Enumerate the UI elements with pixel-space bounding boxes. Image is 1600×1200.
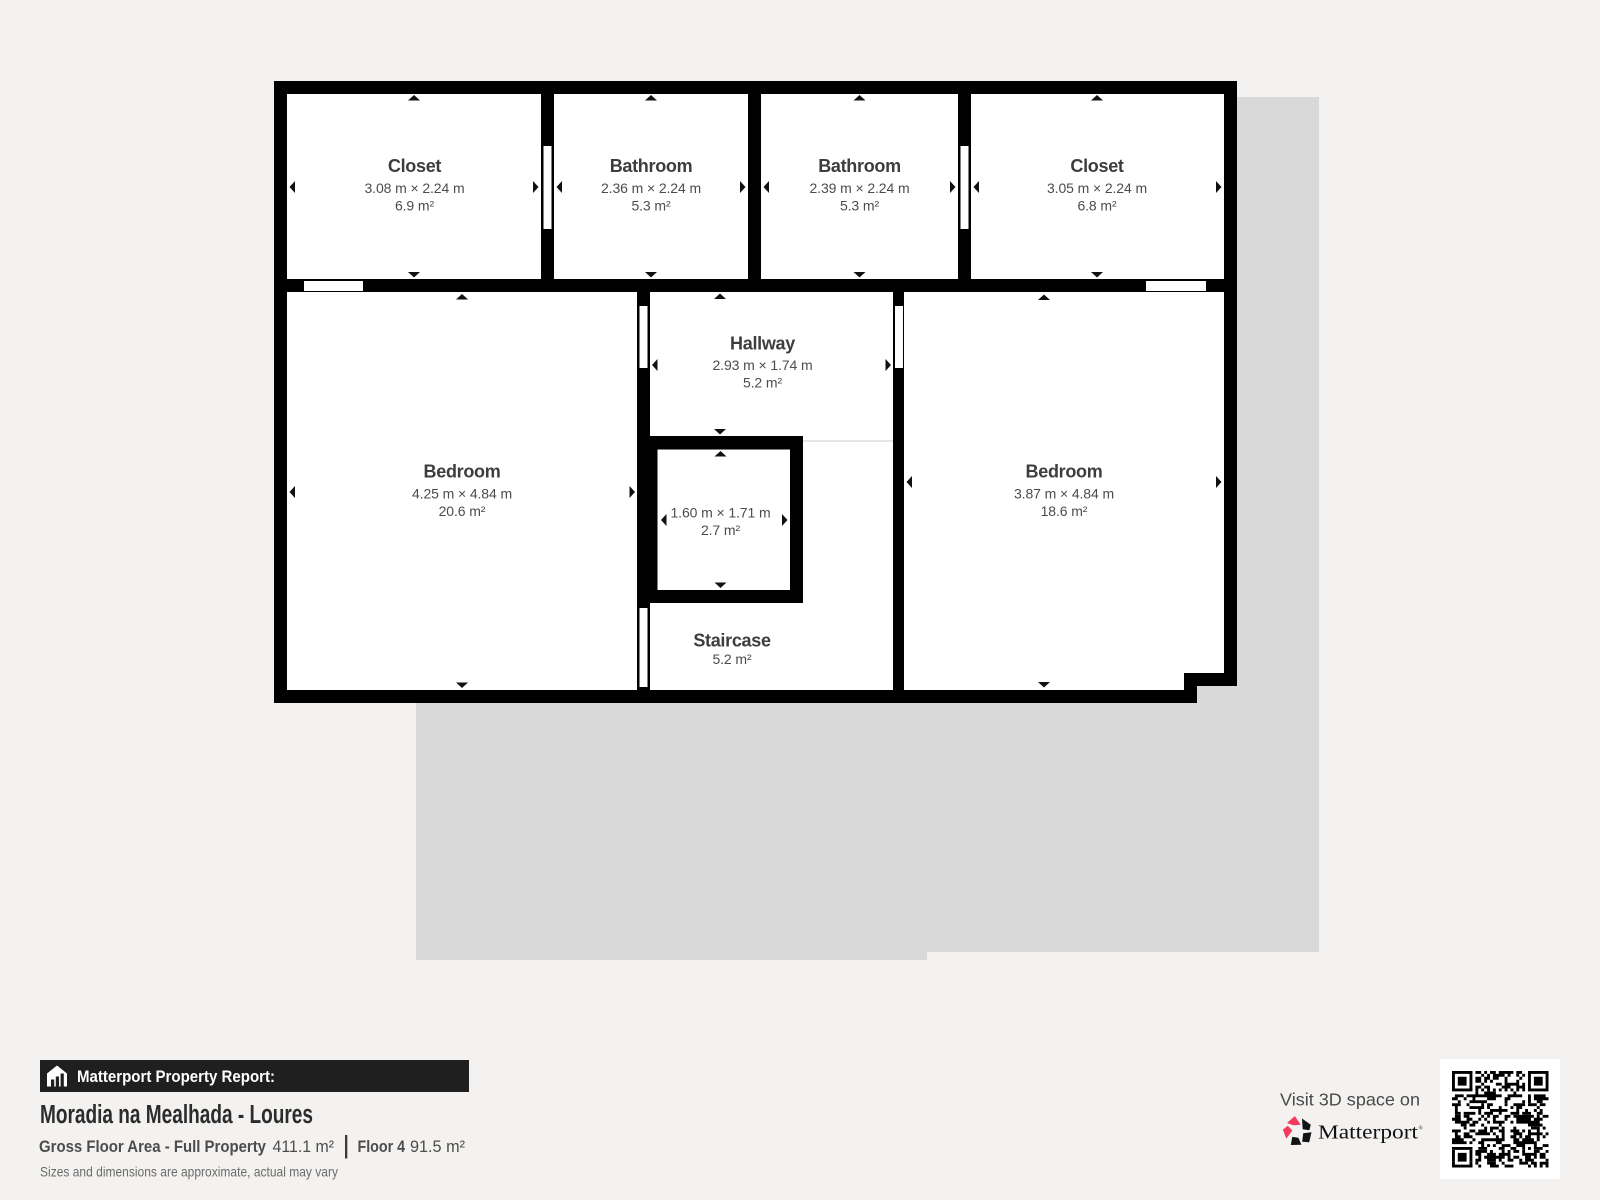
svg-text:Bedroom: Bedroom (424, 462, 501, 482)
svg-text:2.36 m × 2.24 m: 2.36 m × 2.24 m (601, 180, 701, 196)
svg-text:91.5 m²: 91.5 m² (410, 1137, 465, 1156)
svg-text:2.39 m × 2.24 m: 2.39 m × 2.24 m (809, 180, 909, 196)
svg-text:5.2 m²: 5.2 m² (743, 375, 783, 391)
svg-text:Closet: Closet (388, 156, 442, 176)
svg-text:2.93 m × 1.74 m: 2.93 m × 1.74 m (712, 357, 812, 373)
svg-text:3.87 m × 4.84 m: 3.87 m × 4.84 m (1014, 486, 1114, 502)
svg-text:Closet: Closet (1070, 156, 1124, 176)
svg-text:18.6 m²: 18.6 m² (1041, 503, 1088, 519)
svg-text:1.60 m × 1.71 m: 1.60 m × 1.71 m (670, 505, 770, 521)
svg-text:2.7 m²: 2.7 m² (701, 522, 741, 538)
svg-text:5.2 m²: 5.2 m² (712, 651, 752, 667)
svg-text:Bathroom: Bathroom (818, 156, 901, 176)
svg-text:20.6 m²: 20.6 m² (439, 503, 486, 519)
svg-text:6.8 m²: 6.8 m² (1077, 198, 1117, 214)
svg-text:Visit 3D space on: Visit 3D space on (1280, 1090, 1420, 1110)
svg-text:Staircase: Staircase (693, 630, 771, 650)
svg-text:Gross Floor Area - Full Proper: Gross Floor Area - Full Property (39, 1137, 266, 1156)
svg-text:Moradia na Mealhada - Loures: Moradia na Mealhada - Loures (40, 1101, 313, 1129)
svg-text:3.05 m × 2.24 m: 3.05 m × 2.24 m (1047, 180, 1147, 196)
svg-text:5.3 m²: 5.3 m² (840, 198, 880, 214)
svg-text:Sizes and dimensions are appro: Sizes and dimensions are approximate, ac… (40, 1164, 338, 1180)
svg-text:Hallway: Hallway (730, 333, 795, 353)
svg-text:Bathroom: Bathroom (610, 156, 693, 176)
svg-text:Matterport Property Report:: Matterport Property Report: (77, 1067, 275, 1086)
svg-text:Matterport: Matterport (1318, 1123, 1419, 1144)
svg-text:5.3 m²: 5.3 m² (631, 198, 671, 214)
svg-text:411.1 m²: 411.1 m² (273, 1137, 335, 1156)
svg-text:Floor 4: Floor 4 (358, 1137, 406, 1156)
svg-text:6.9 m²: 6.9 m² (395, 198, 435, 214)
svg-text:Bedroom: Bedroom (1026, 462, 1103, 482)
svg-text:4.25 m × 4.84 m: 4.25 m × 4.84 m (412, 486, 512, 502)
svg-text:®: ® (1419, 1125, 1423, 1132)
svg-text:3.08 m × 2.24 m: 3.08 m × 2.24 m (364, 180, 464, 196)
